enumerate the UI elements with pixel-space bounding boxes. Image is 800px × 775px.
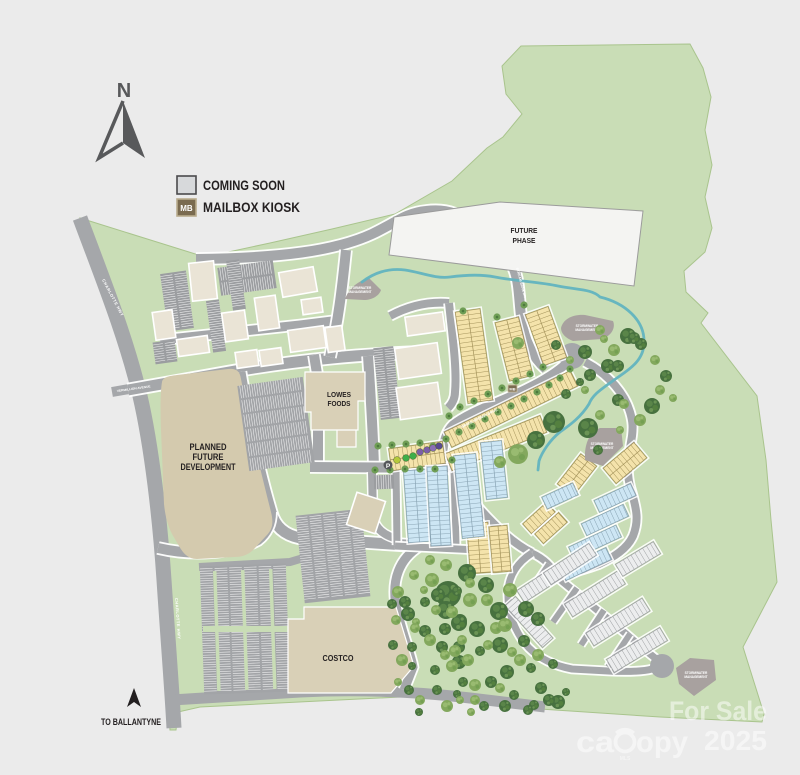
- svg-text:PLANNED: PLANNED: [190, 442, 227, 452]
- svg-text:2025: 2025: [704, 725, 767, 756]
- svg-text:LOWES: LOWES: [327, 390, 351, 399]
- svg-text:MANAGEMENT: MANAGEMENT: [684, 675, 707, 679]
- svg-text:PHASE: PHASE: [513, 238, 536, 245]
- svg-text:MLS: MLS: [620, 756, 631, 762]
- svg-text:MB: MB: [509, 387, 515, 392]
- svg-text:For Sale: For Sale: [669, 696, 767, 726]
- svg-text:FUTURE: FUTURE: [193, 452, 224, 462]
- svg-text:opy: opy: [636, 726, 688, 759]
- svg-text:COSTCO: COSTCO: [323, 653, 354, 663]
- svg-text:MB: MB: [180, 204, 193, 213]
- svg-text:FUTURE: FUTURE: [511, 228, 538, 235]
- svg-text:ca: ca: [576, 726, 614, 759]
- svg-text:COMING SOON: COMING SOON: [203, 177, 285, 193]
- svg-text:TO BALLANTYNE: TO BALLANTYNE: [101, 717, 161, 727]
- svg-text:MAILBOX KIOSK: MAILBOX KIOSK: [203, 199, 300, 215]
- svg-text:MANAGEMENT: MANAGEMENT: [348, 290, 371, 294]
- svg-text:N: N: [117, 80, 131, 102]
- svg-text:P: P: [386, 463, 391, 470]
- svg-text:FOODS: FOODS: [328, 399, 351, 408]
- svg-text:DEVELOPMENT: DEVELOPMENT: [181, 462, 236, 472]
